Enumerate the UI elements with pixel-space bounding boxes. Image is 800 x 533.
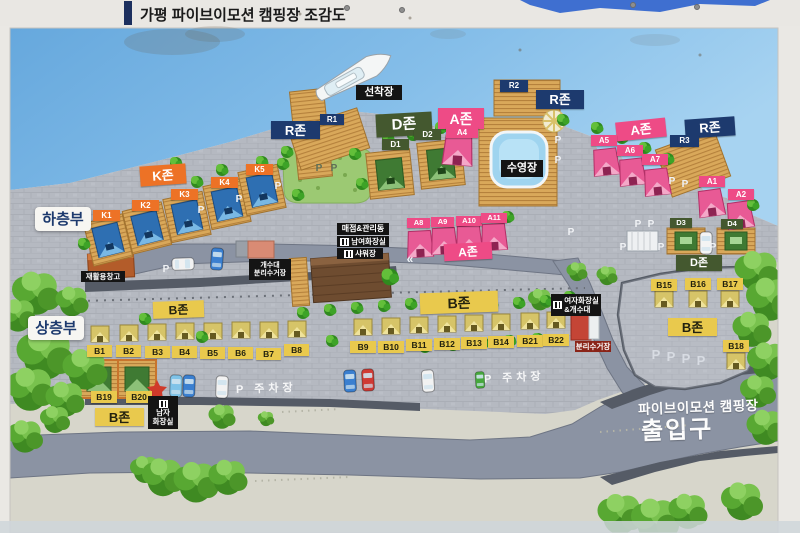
site-label-b3: B3 [145,346,170,358]
site-label-a10: A10 [456,216,482,226]
zone-label-b-2: B존 [153,300,205,319]
zone-label-a-3: A존 [444,242,493,261]
women-toilet-label: 여자화장실 &개수대 [551,294,601,316]
site-label-b5: B5 [200,347,225,359]
site-label-d4: D4 [721,219,743,229]
site-label-k5: K5 [246,164,273,175]
unisex-toilet-label: 남여화장실 [337,236,389,247]
unisex-toilet-text: 남여화장실 [351,238,386,246]
site-label-k1: K1 [93,210,120,221]
site-label-b14: B14 [488,336,514,348]
site-label-b8: B8 [284,344,309,356]
title-accent-bar [124,1,132,25]
site-label-b13: B13 [461,337,487,349]
site-label-b21: B21 [517,335,543,347]
site-label-r1: R1 [320,114,344,125]
parking-lot-label-right: P 주차장 [484,367,545,386]
site-label-r3: R3 [670,135,699,147]
sink-text: 개수대 [260,262,279,269]
women-toilet-text: 여자화장실 [564,297,599,305]
site-label-k2: K2 [132,200,159,211]
campground-map-photo: P P P P P P P P P P P P P P P P P P P P … [0,0,800,533]
store-label: 매점&관리동 [337,223,389,235]
site-label-k3: K3 [171,189,198,200]
site-label-b22: B22 [543,334,569,346]
sink-recycle-label: 개수대 분리수거장 [249,259,291,280]
recycle-small-label: 분리수거장 [575,341,611,352]
section-lower: 하층부 [35,207,91,231]
toilet-icon [340,238,349,246]
site-label-a6: A6 [617,145,643,156]
recycle-station-text: 분리수거장 [254,270,286,277]
zone-label-b-1: B존 [420,291,499,315]
toilet-icon [159,400,168,408]
dock-label: 선착장 [356,85,402,100]
site-label-a8: A8 [407,218,430,228]
section-upper: 상층부 [28,316,84,340]
sign-title: 가평 파이브이모션 캠핑장 조감도 [140,4,346,25]
women-toilet-texts: 여자화장실 &개수대 [564,297,599,313]
site-label-b17: B17 [717,278,743,290]
site-label-a9: A9 [431,217,454,227]
site-label-d2: D2 [414,129,441,140]
toilet-icon [553,301,562,309]
zone-label-b-4: B존 [668,318,717,336]
site-label-k4: K4 [211,177,238,188]
site-label-b11: B11 [406,339,432,351]
men-toilet-label: 남자 화장실 [148,396,178,429]
men-toilet-text-bottom: 화장실 [153,418,174,426]
zone-label-k: K존 [139,163,186,186]
recycle-storage-label: 재활용창고 [81,271,125,282]
shower-label: 샤워장 [337,248,383,259]
site-label-r2: R2 [500,80,528,92]
zone-label-b-3: B존 [95,408,144,426]
site-label-a5: A5 [591,135,617,146]
zone-label-a-2: A존 [615,117,667,141]
site-label-b7: B7 [256,348,281,360]
zone-label-a-1: A존 [438,108,484,129]
site-label-a4: A4 [446,127,478,138]
site-label-b6: B6 [228,347,253,359]
women-toilet-sub-text: &개수대 [564,306,599,314]
site-label-a1: A1 [699,176,725,187]
site-label-a11: A11 [481,213,507,223]
site-label-b10: B10 [378,341,404,353]
site-label-b18: B18 [723,340,749,352]
zone-label-r-1: R존 [271,121,320,139]
site-label-a2: A2 [728,189,754,200]
zone-label-d-2: D존 [676,255,722,271]
site-label-b15: B15 [651,279,677,291]
shower-text: 샤워장 [355,250,376,258]
parking-lot-label-left: P 주차장 [236,379,297,397]
site-label-b9: B9 [350,341,376,353]
men-toilet-text-top: 남자 [156,409,170,417]
label-overlay: 가평 파이브이모션 캠핑장 조감도 하층부 상층부 R존 R존 R존 K존 D존… [0,0,800,533]
site-label-b16: B16 [685,278,711,290]
site-label-d3: D3 [670,218,692,228]
zone-label-r-2: R존 [536,90,584,109]
site-label-b19: B19 [91,391,117,403]
site-label-a7: A7 [642,154,668,165]
site-label-b12: B12 [434,338,460,350]
site-label-b2: B2 [116,345,141,357]
pool-label: 수영장 [501,160,543,177]
site-label-b4: B4 [172,346,197,358]
site-label-b1: B1 [87,345,112,357]
entrance-gate-label: 출입구 [640,409,713,447]
site-label-d1: D1 [382,139,409,150]
shower-icon [344,250,353,258]
